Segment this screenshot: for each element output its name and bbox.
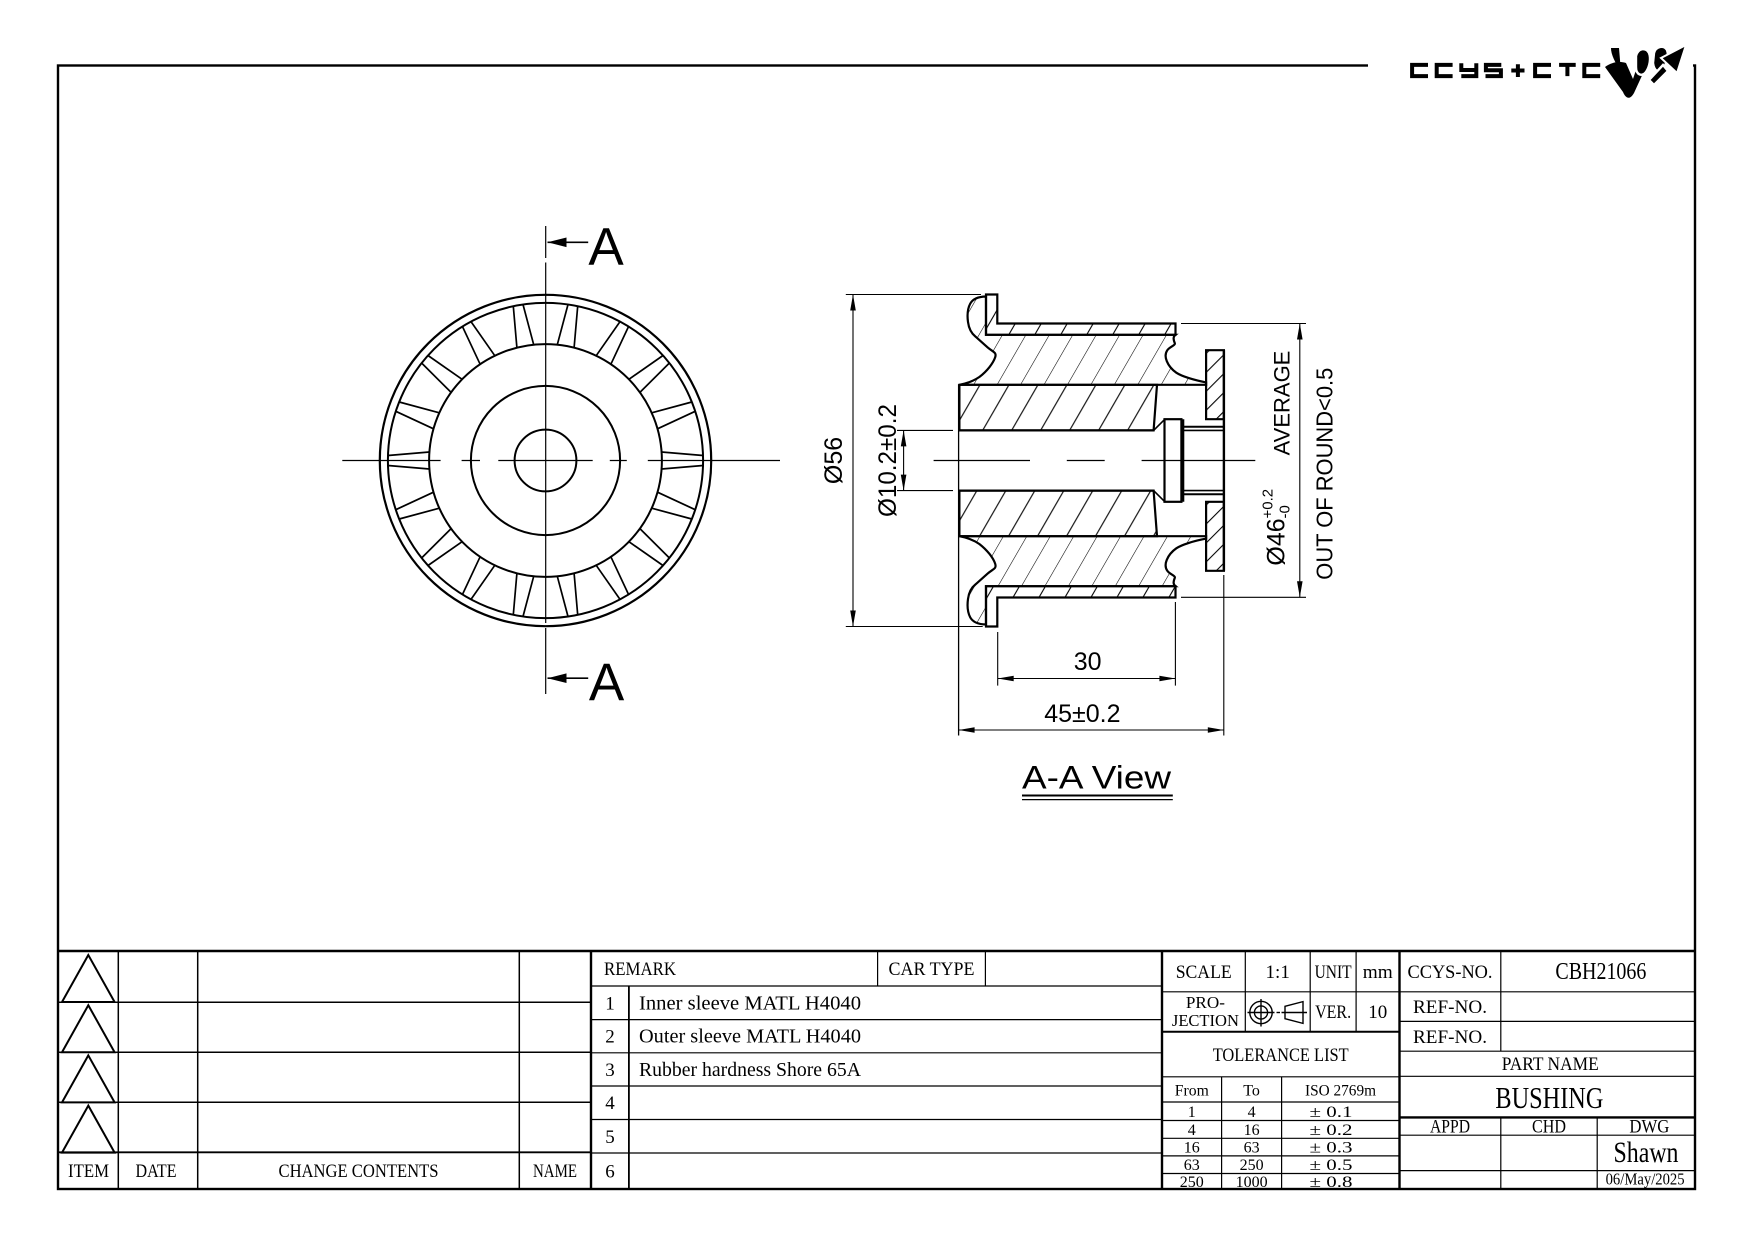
svg-text:DWG: DWG: [1629, 1117, 1669, 1138]
svg-text:1000: 1000: [1236, 1174, 1268, 1191]
svg-text:4: 4: [1248, 1104, 1256, 1121]
svg-text:4: 4: [1188, 1122, 1196, 1139]
svg-text:06/May/2025: 06/May/2025: [1606, 1170, 1685, 1189]
svg-text:± 0.5: ± 0.5: [1310, 1157, 1353, 1174]
svg-text:REF-NO.: REF-NO.: [1413, 997, 1487, 1018]
svg-text:16: 16: [1184, 1140, 1200, 1157]
svg-text:APPD: APPD: [1430, 1117, 1470, 1138]
svg-text:CHANGE CONTENTS: CHANGE CONTENTS: [279, 1161, 439, 1182]
svg-text:250: 250: [1180, 1174, 1204, 1191]
svg-text:± 0.2: ± 0.2: [1310, 1122, 1353, 1139]
svg-text:+0.2: +0.2: [1260, 489, 1277, 519]
svg-text:ITEM: ITEM: [68, 1161, 109, 1182]
svg-text:45±0.2: 45±0.2: [1044, 700, 1120, 728]
svg-text:Outer sleeve MATL H4040: Outer sleeve MATL H4040: [639, 1026, 861, 1048]
svg-text:4: 4: [605, 1093, 615, 1114]
svg-text:BUSHING: BUSHING: [1495, 1080, 1603, 1115]
svg-text:10: 10: [1368, 1002, 1387, 1023]
svg-text:From: From: [1175, 1083, 1210, 1100]
svg-text:Ø10.2±0.2: Ø10.2±0.2: [874, 404, 902, 517]
svg-text:Ø46: Ø46: [1263, 518, 1291, 565]
svg-text:Rubber hardness Shore 65A: Rubber hardness Shore 65A: [639, 1059, 862, 1081]
svg-text:A: A: [588, 218, 624, 277]
svg-text:1: 1: [605, 993, 615, 1014]
svg-text:DATE: DATE: [136, 1161, 177, 1182]
svg-text:CBH21066: CBH21066: [1555, 959, 1646, 985]
svg-text:NAME: NAME: [533, 1161, 577, 1182]
svg-text:SCALE: SCALE: [1176, 962, 1232, 983]
svg-text:± 0.8: ± 0.8: [1310, 1174, 1353, 1191]
svg-text:UNIT: UNIT: [1315, 962, 1352, 983]
svg-text:CCYS-NO.: CCYS-NO.: [1408, 962, 1493, 983]
svg-text:OUT OF ROUND<0.5: OUT OF ROUND<0.5: [1312, 368, 1338, 580]
svg-text:± 0.3: ± 0.3: [1310, 1140, 1353, 1157]
svg-text:mm: mm: [1363, 962, 1393, 983]
svg-text:To: To: [1243, 1083, 1260, 1100]
svg-text:PART NAME: PART NAME: [1502, 1054, 1599, 1075]
svg-text:1:1: 1:1: [1266, 962, 1290, 983]
svg-text:± 0.1: ± 0.1: [1310, 1104, 1353, 1121]
svg-text:5: 5: [605, 1127, 615, 1148]
svg-text:3: 3: [605, 1060, 615, 1081]
svg-text:VER.: VER.: [1315, 1002, 1351, 1023]
svg-text:REMARK: REMARK: [604, 959, 676, 980]
svg-text:63: 63: [1244, 1140, 1260, 1157]
svg-text:AVERAGE: AVERAGE: [1270, 351, 1295, 456]
svg-text:A-A View: A-A View: [1022, 760, 1172, 796]
svg-text:REF-NO.: REF-NO.: [1413, 1027, 1487, 1048]
svg-text:16: 16: [1244, 1122, 1260, 1139]
svg-text:2: 2: [605, 1027, 615, 1048]
svg-text:JECTION: JECTION: [1172, 1011, 1239, 1030]
svg-text:CAR TYPE: CAR TYPE: [889, 959, 975, 980]
svg-text:Shawn: Shawn: [1614, 1136, 1679, 1169]
svg-text:CHD: CHD: [1532, 1117, 1566, 1138]
svg-text:PRO-: PRO-: [1186, 993, 1225, 1012]
svg-text:1: 1: [1188, 1104, 1196, 1121]
svg-text:63: 63: [1184, 1157, 1200, 1174]
svg-text:A: A: [589, 653, 625, 712]
svg-text:30: 30: [1074, 648, 1102, 676]
svg-text:6: 6: [605, 1161, 615, 1182]
svg-text:Inner sleeve MATL H4040: Inner sleeve MATL H4040: [639, 992, 861, 1014]
svg-text:TOLERANCE LIST: TOLERANCE LIST: [1213, 1045, 1349, 1066]
svg-text:-0: -0: [1276, 505, 1293, 518]
svg-text:Ø56: Ø56: [820, 437, 848, 484]
svg-text:ISO 2769m: ISO 2769m: [1305, 1083, 1377, 1100]
svg-text:250: 250: [1240, 1157, 1264, 1174]
